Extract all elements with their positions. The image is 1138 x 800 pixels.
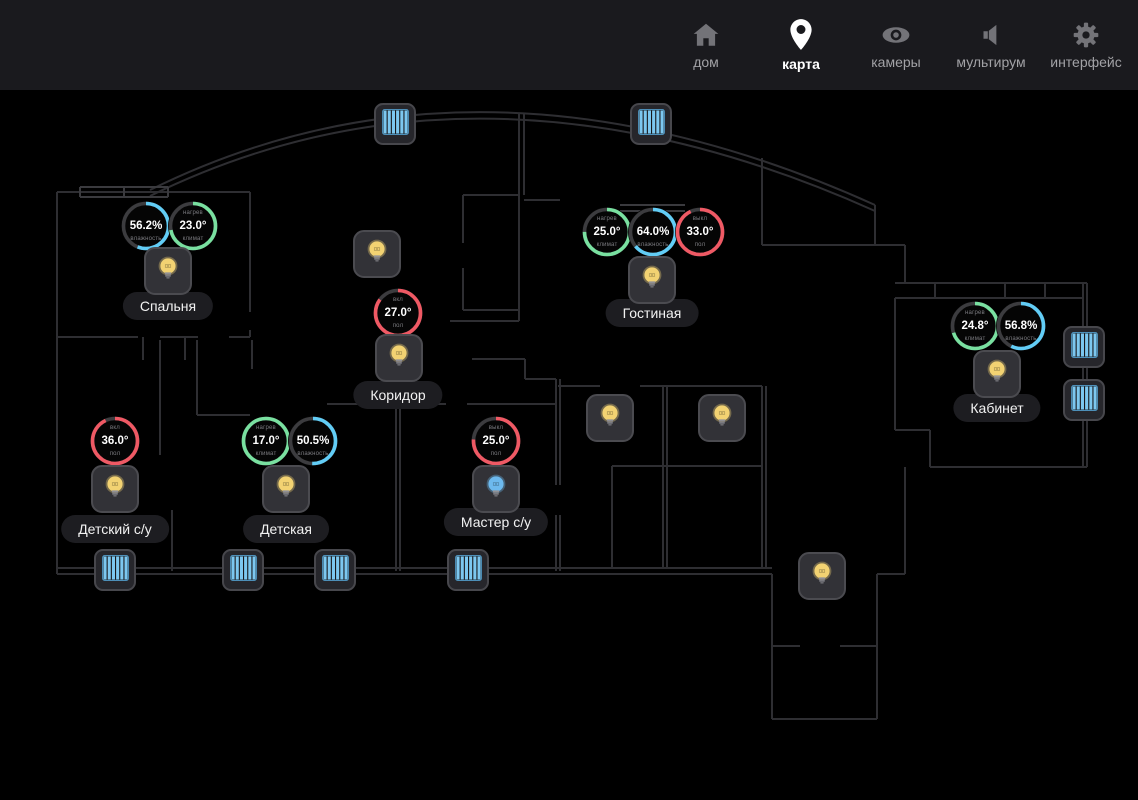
gauge-climate-bedroom[interactable]: нагрев 23.0° климат: [168, 201, 218, 251]
blinds-icon: [1071, 332, 1098, 363]
nav-menu: дом карта камеры мультирум интерфейс: [674, 0, 1118, 90]
gauge-type-label: пол: [675, 242, 725, 248]
gauge-type-label: климат: [950, 336, 1000, 342]
room-label-kids-bathroom: Детский с/у: [61, 515, 169, 543]
gauge-mode-label: нагрев: [582, 216, 632, 222]
gauge-mode-label: нагрев: [241, 425, 291, 431]
gauge-value: 17.0°: [241, 435, 291, 447]
map-pin-icon: [786, 18, 816, 52]
room-label-bedroom: Спальня: [123, 292, 213, 320]
gauge-type-label: пол: [90, 451, 140, 457]
gauge-value: 25.0°: [471, 435, 521, 447]
light-bulb-button-kids-room[interactable]: [262, 465, 310, 513]
floor-plan-walls: [0, 90, 1138, 800]
light-bulb-button-corridor[interactable]: [353, 230, 401, 278]
blinds-button[interactable]: [94, 549, 136, 591]
gauge-mode-label: выкл: [471, 425, 521, 431]
light-bulb-button[interactable]: [698, 394, 746, 442]
light-bulb-button-office[interactable]: [973, 350, 1021, 398]
light-bulb-icon: [709, 403, 735, 434]
gear-icon: [1071, 20, 1101, 50]
nav-item-cameras[interactable]: камеры: [864, 20, 928, 70]
nav-item-multiroom[interactable]: мультирум: [959, 20, 1023, 70]
gauge-climate-kids-room[interactable]: нагрев 17.0° климат: [241, 416, 291, 466]
light-bulb-icon: [155, 256, 181, 287]
nav-item-label: дом: [693, 54, 719, 70]
blinds-icon: [1071, 385, 1098, 416]
gauge-value: 27.0°: [373, 307, 423, 319]
nav-item-map[interactable]: карта: [769, 18, 833, 72]
light-bulb-icon: [809, 561, 835, 592]
blinds-button[interactable]: [374, 103, 416, 145]
gauge-climate-office[interactable]: нагрев 24.8° климат: [950, 301, 1000, 351]
gauge-mode-label: нагрев: [168, 210, 218, 216]
gauge-humidity-office[interactable]: 56.8% влажность: [996, 301, 1046, 351]
gauge-type-label: влажность: [628, 242, 678, 248]
gauge-value: 25.0°: [582, 226, 632, 238]
blinds-button[interactable]: [1063, 326, 1105, 368]
blinds-icon: [638, 109, 665, 140]
gauge-mode-label: вкл: [373, 297, 423, 303]
light-bulb-icon: [386, 343, 412, 374]
gauge-value: 56.2%: [121, 220, 171, 232]
blinds-button[interactable]: [222, 549, 264, 591]
nav-item-label: интерфейс: [1050, 54, 1122, 70]
light-bulb-icon: [364, 239, 390, 270]
gauge-mode-label: выкл: [675, 216, 725, 222]
light-bulb-icon: [102, 474, 128, 505]
gauge-mode-label: нагрев: [950, 310, 1000, 316]
room-label-corridor: Коридор: [353, 381, 442, 409]
gauge-type-label: пол: [373, 323, 423, 329]
speaker-icon: [976, 20, 1006, 50]
gauge-type-label: пол: [471, 451, 521, 457]
gauge-value: 33.0°: [675, 226, 725, 238]
top-navigation-bar: дом карта камеры мультирум интерфейс: [0, 0, 1138, 90]
gauge-floor-master-bathroom[interactable]: выкл 25.0° пол: [471, 416, 521, 466]
blinds-icon: [322, 555, 349, 586]
blinds-icon: [230, 555, 257, 586]
gauge-floor-kids-bathroom[interactable]: вкл 36.0° пол: [90, 416, 140, 466]
light-bulb-button-master-bathroom[interactable]: [472, 465, 520, 513]
home-icon: [691, 20, 721, 50]
gauge-value: 23.0°: [168, 220, 218, 232]
gauge-floor-corridor[interactable]: вкл 27.0° пол: [373, 288, 423, 338]
blinds-button[interactable]: [1063, 379, 1105, 421]
gauge-value: 64.0%: [628, 226, 678, 238]
gauge-type-label: влажность: [996, 336, 1046, 342]
gauge-type-label: влажность: [288, 451, 338, 457]
gauge-value: 50.5%: [288, 435, 338, 447]
nav-item-home[interactable]: дом: [674, 20, 738, 70]
gauge-humidity-kids-room[interactable]: 50.5% влажность: [288, 416, 338, 466]
blinds-button[interactable]: [314, 549, 356, 591]
light-bulb-icon: [273, 474, 299, 505]
gauge-humidity-living-room[interactable]: 64.0% влажность: [628, 207, 678, 257]
light-bulb-icon: [639, 265, 665, 296]
light-bulb-button-living-room[interactable]: [628, 256, 676, 304]
room-label-office: Кабинет: [953, 394, 1040, 422]
gauge-climate-living-room[interactable]: нагрев 25.0° климат: [582, 207, 632, 257]
room-label-kids-room: Детская: [243, 515, 329, 543]
floor-plan-map: СпальняГостинаяКоридорКабинетДетский с/у…: [0, 90, 1138, 800]
gauge-humidity-bedroom[interactable]: 56.2% влажность: [121, 201, 171, 251]
gauge-value: 36.0°: [90, 435, 140, 447]
nav-item-label: карта: [782, 56, 820, 72]
light-bulb-button-kids-bathroom[interactable]: [91, 465, 139, 513]
light-bulb-button[interactable]: [798, 552, 846, 600]
gauge-type-label: климат: [241, 451, 291, 457]
light-bulb-button-corridor[interactable]: [375, 334, 423, 382]
gauge-type-label: климат: [582, 242, 632, 248]
blinds-button[interactable]: [447, 549, 489, 591]
light-bulb-icon: [984, 359, 1010, 390]
blinds-button[interactable]: [630, 103, 672, 145]
blinds-icon: [455, 555, 482, 586]
gauge-type-label: влажность: [121, 236, 171, 242]
light-bulb-icon: [597, 403, 623, 434]
eye-icon: [879, 20, 913, 50]
gauge-type-label: климат: [168, 236, 218, 242]
light-bulb-button[interactable]: [586, 394, 634, 442]
blinds-icon: [382, 109, 409, 140]
nav-item-label: мультирум: [956, 54, 1025, 70]
nav-item-label: камеры: [871, 54, 920, 70]
smart-home-app: дом карта камеры мультирум интерфейс: [0, 0, 1138, 800]
light-bulb-icon: [483, 474, 509, 505]
blinds-icon: [102, 555, 129, 586]
gauge-floor-living-room[interactable]: выкл 33.0° пол: [675, 207, 725, 257]
gauge-value: 24.8°: [950, 320, 1000, 332]
gauge-mode-label: вкл: [90, 425, 140, 431]
nav-item-interface[interactable]: интерфейс: [1054, 20, 1118, 70]
gauge-value: 56.8%: [996, 320, 1046, 332]
light-bulb-button-bedroom[interactable]: [144, 247, 192, 295]
